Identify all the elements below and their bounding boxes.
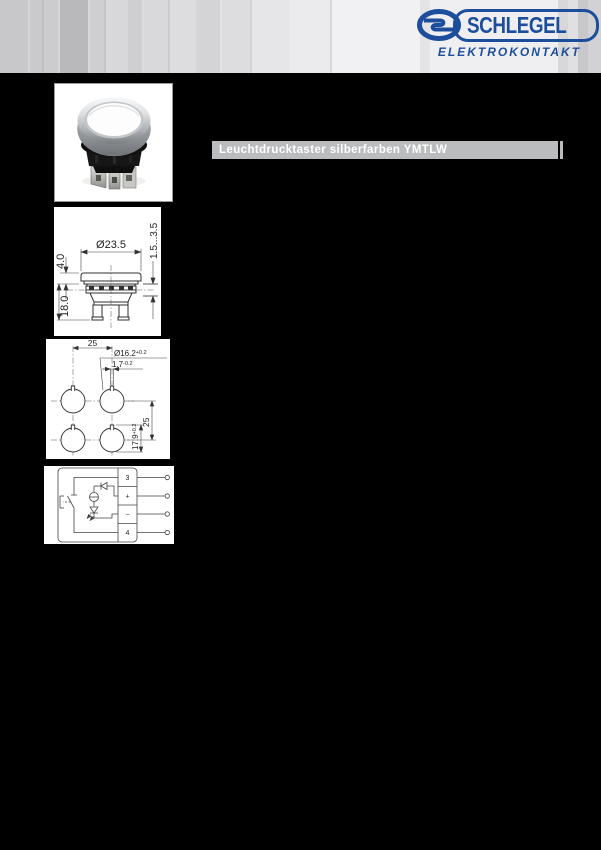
center-lines [67,265,155,328]
terminal-label-plus: + [125,494,129,501]
product-photo-box [54,83,173,202]
pushbutton-photo [55,84,172,201]
led-symbol [87,507,98,521]
notch-width-label: 1.7-0.2 [112,360,133,369]
datasheet-page: SCHLEGEL ® ELEKTROKONTAKT [0,0,601,850]
terminal-label-3: 3 [126,475,130,482]
terminal-wires [137,475,170,534]
hole-diameter-label: Ø16.2+0.2 [114,349,147,358]
hole-spacing-h-label: 25 [88,339,98,348]
title-bar-end-cap [560,141,563,159]
dim-diameter-label: Ø23.5 [96,239,126,251]
terminal-label-4: 4 [126,530,130,537]
dim-panel-thickness-label: 1.5...3.5 [149,222,160,259]
dimension-drawing: Ø23.5 4.0 18.0 1.5...3.5 [54,207,161,336]
circuit-diagram-box: 3 + − 4 [44,466,174,544]
logo-subline-text: ELEKTROKONTAKT [416,45,581,59]
page-title: Leuchtdrucktaster silberfarben YMTLW [212,141,558,159]
dimension-drawing-box: Ø23.5 4.0 18.0 1.5...3.5 [54,207,161,336]
schlegel-logo: SCHLEGEL ® ELEKTROKONTAKT [416,8,581,59]
hole-height-label: 17.9+0.2 [131,424,140,450]
logo-brand-text: SCHLEGEL [467,14,566,37]
drill-template-box: 25 Ø16.2+0.2 1.7-0.2 25 17.9+0.2 [46,339,170,459]
dim-cap-height-label: 4.0 [55,254,67,269]
dim-depth-label: 18.0 [59,296,71,317]
drill-template-drawing: 25 Ø16.2+0.2 1.7-0.2 25 17.9+0.2 [46,339,170,459]
terminal-label-minus: − [125,512,129,519]
circuit-diagram: 3 + − 4 [44,466,174,544]
mounting-holes [61,386,124,452]
logo-wordmark-frame: SCHLEGEL ® [453,9,599,42]
header-band: SCHLEGEL ® ELEKTROKONTAKT [0,0,601,73]
led-branch [87,483,118,521]
terminal-labels: 3 + − 4 [125,475,129,537]
logo-row: SCHLEGEL ® [416,8,581,42]
hole-spacing-v-label: 25 [141,417,151,427]
current-regulator-symbol [90,493,99,502]
bezel-and-face [78,97,151,156]
schlegel-s-oval-icon [416,8,462,42]
